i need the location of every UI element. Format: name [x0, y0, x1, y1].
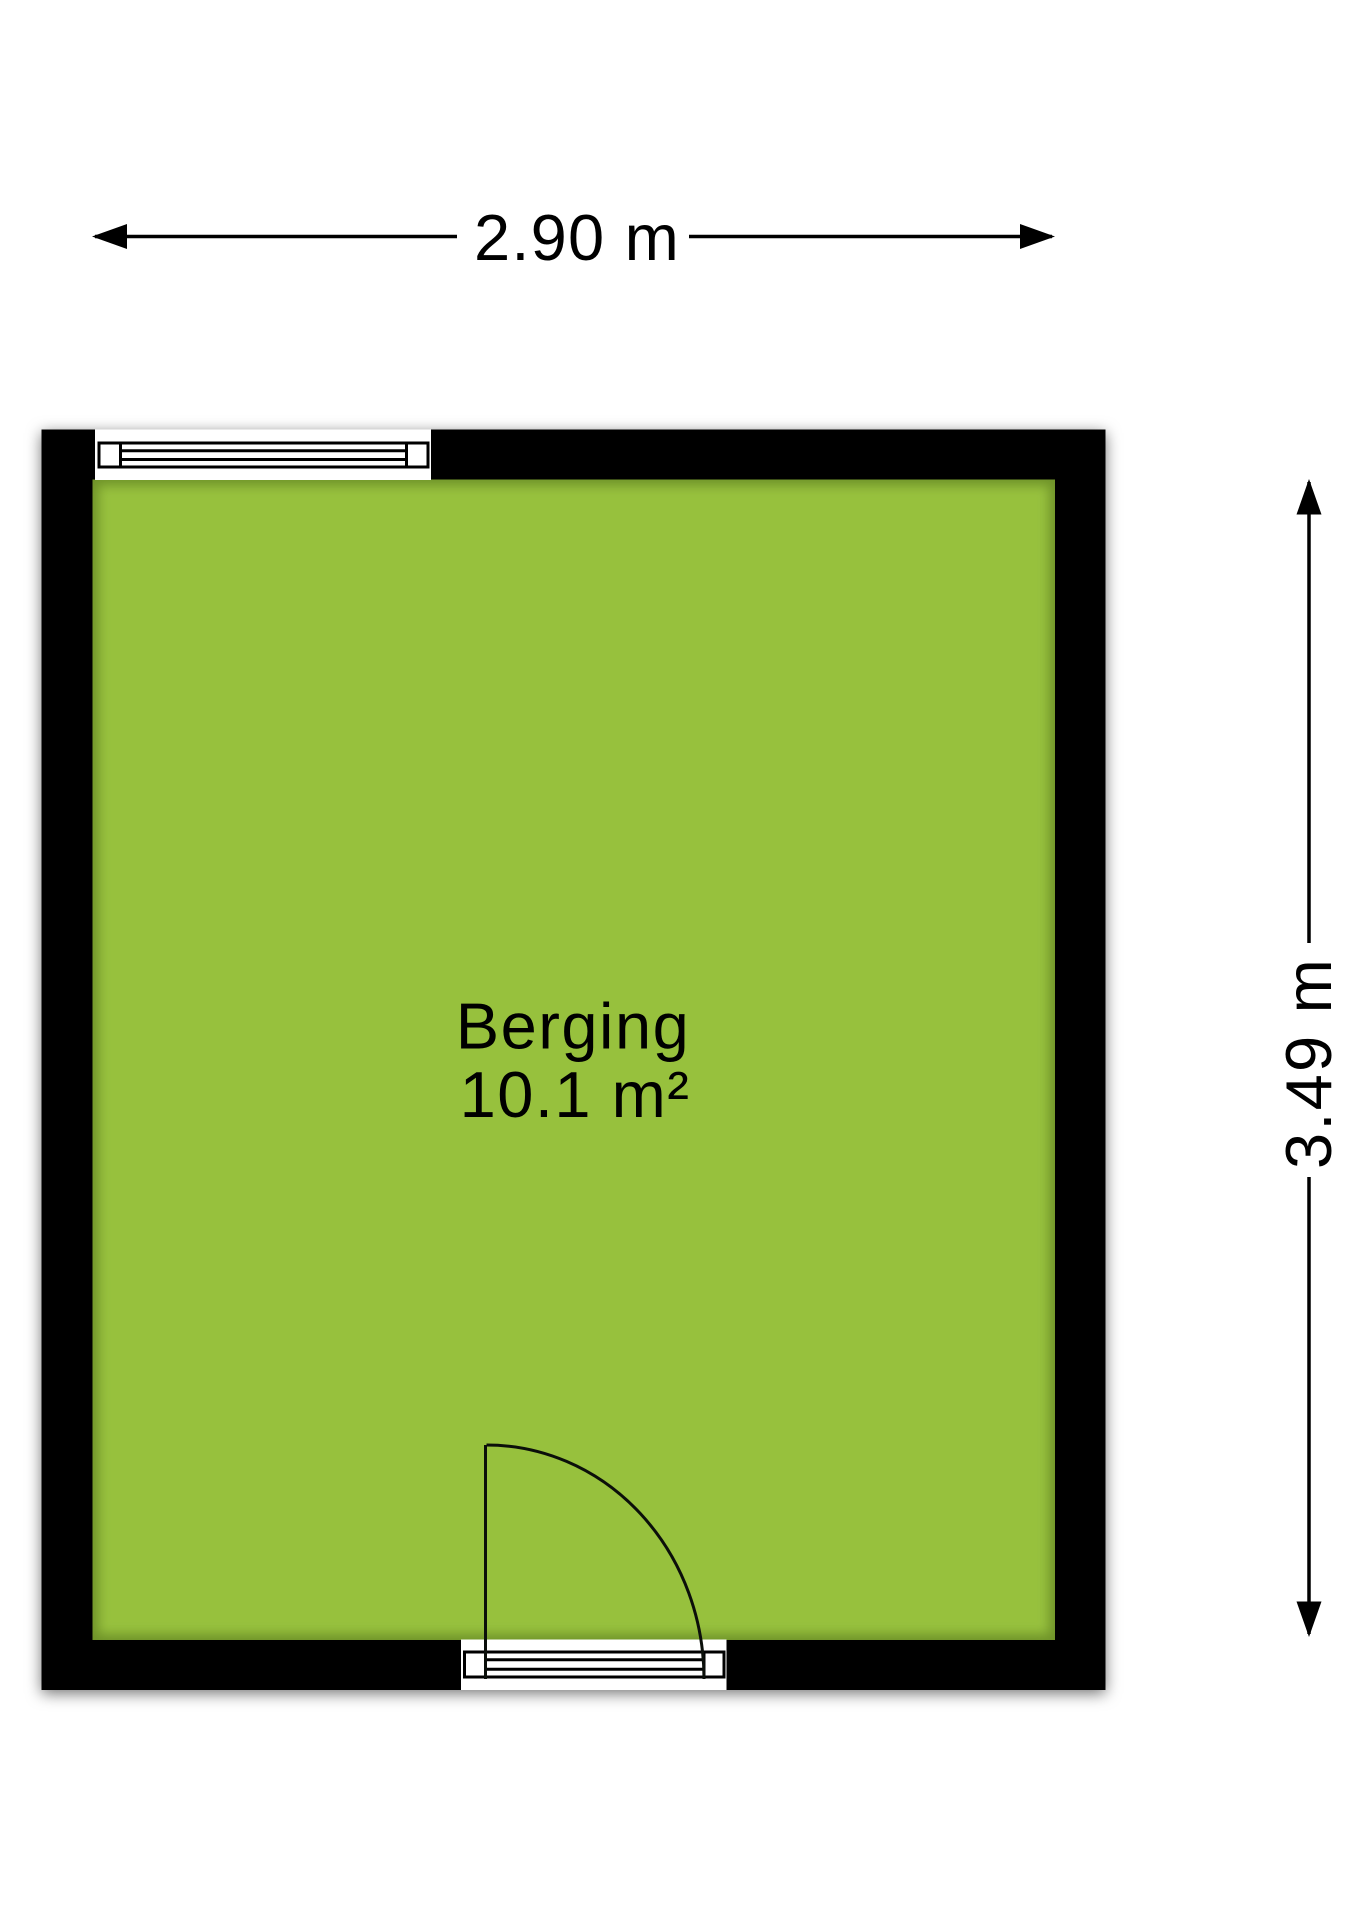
- svg-text:3.49 m: 3.49 m: [1272, 957, 1345, 1169]
- svg-text:2.90 m: 2.90 m: [474, 201, 680, 274]
- svg-text:10.1 m²: 10.1 m²: [460, 1058, 691, 1131]
- svg-text:Berging: Berging: [456, 990, 691, 1063]
